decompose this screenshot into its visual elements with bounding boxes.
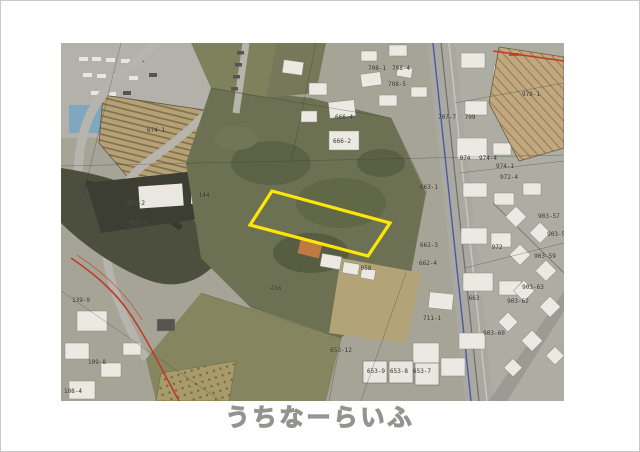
aerial-map-svg <box>61 43 564 401</box>
aerial-map-image: 674-1645-2144545-3708-1708-4708-5666-466… <box>61 43 564 401</box>
white-parcels-653 <box>363 361 439 385</box>
watermark-text: うちなーらいふ <box>226 398 415 433</box>
red-stamp-mark <box>509 53 519 56</box>
page: 674-1645-2144545-3708-1708-4708-5666-466… <box>0 0 640 452</box>
